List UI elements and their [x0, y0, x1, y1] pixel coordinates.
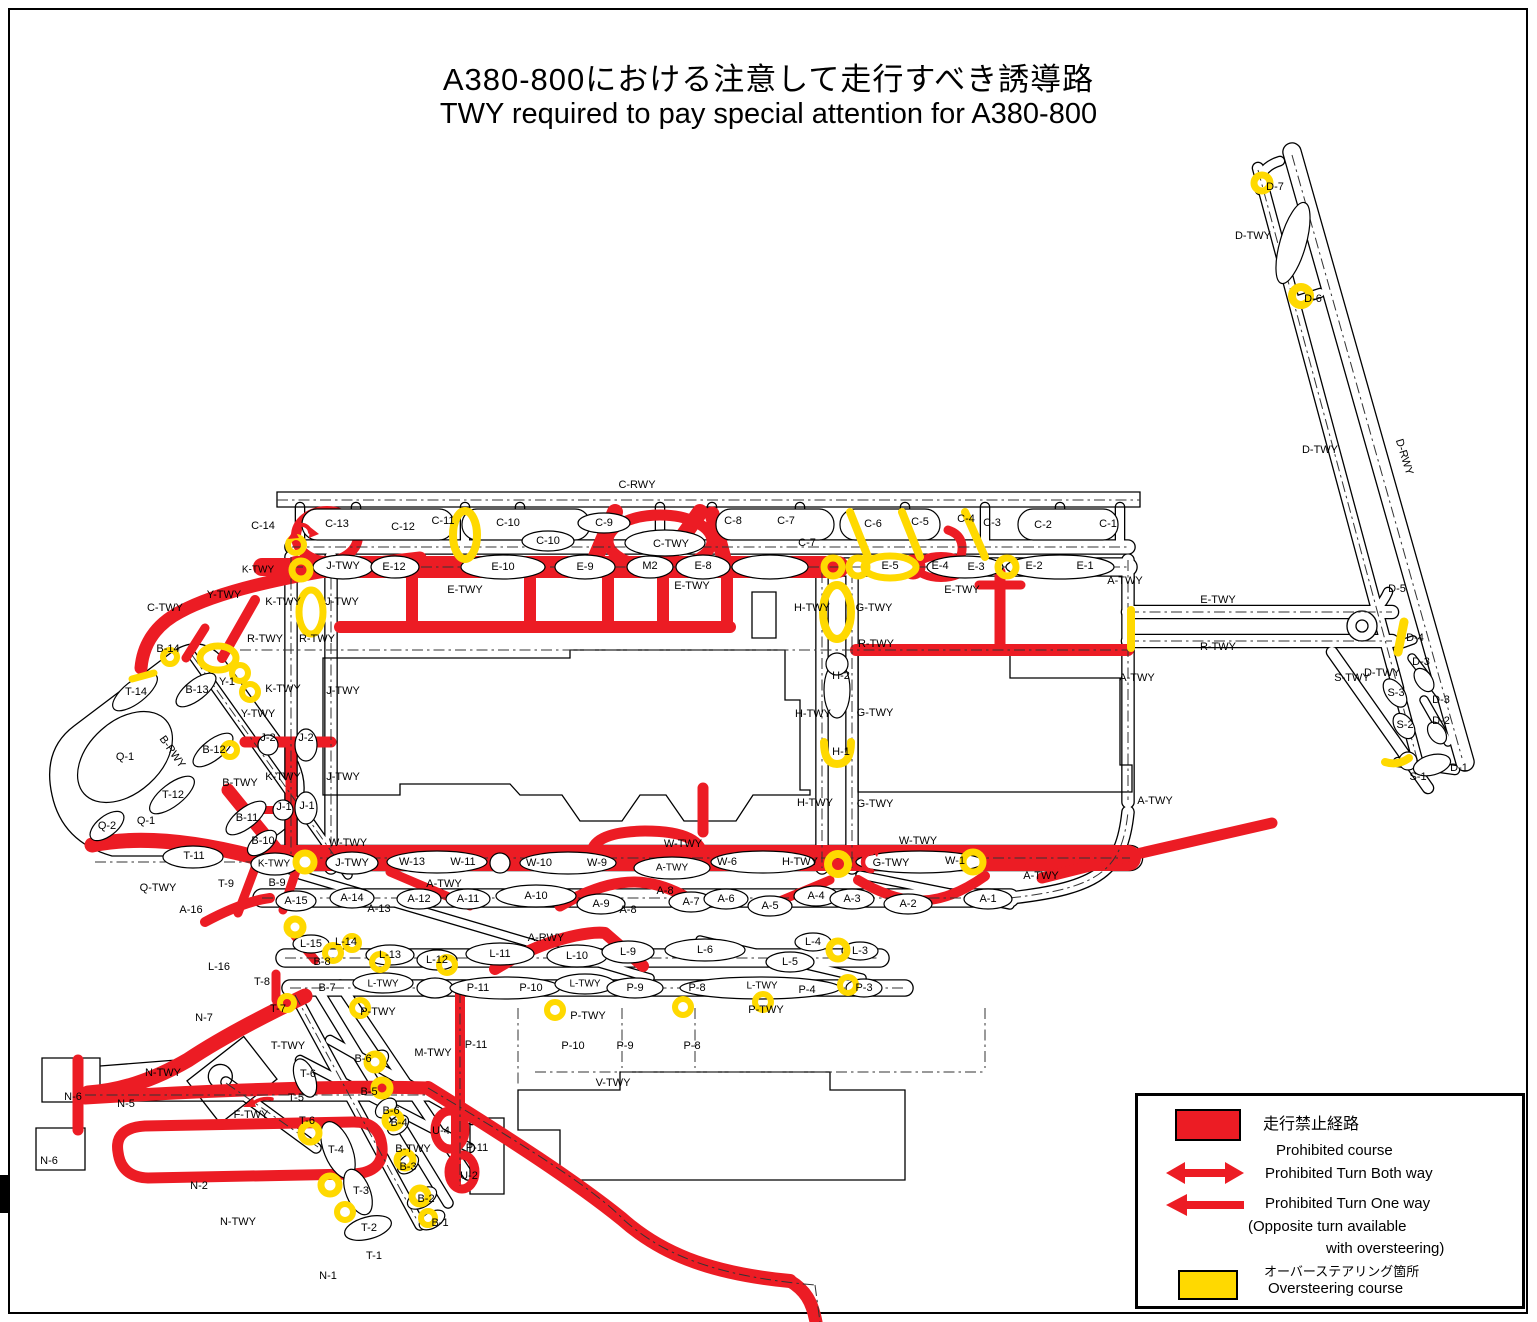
map-label: H-TWY	[797, 797, 834, 809]
legend-oversteer-jp: オーバーステアリング箇所	[1264, 1261, 1419, 1280]
map-label: C-9	[595, 517, 613, 529]
map-label: D-3	[1432, 694, 1450, 706]
map-label: T-6	[300, 1068, 316, 1080]
map-label: L-TWY	[367, 979, 398, 990]
legend-turn-one-note1: (Opposite turn available	[1248, 1218, 1406, 1235]
oversteer-segment	[547, 1002, 563, 1018]
structure-outline	[858, 648, 1132, 792]
map-label: L-TWY	[746, 981, 777, 992]
map-label: B-5	[360, 1086, 377, 1098]
map-label: E-3	[967, 561, 984, 573]
map-label: S-2	[1396, 719, 1413, 731]
map-label: Y-TWY	[241, 708, 276, 720]
map-label: Y-TWY	[207, 589, 242, 601]
map-label: A-TWY	[1107, 575, 1143, 587]
map-label: C-2	[1034, 519, 1052, 531]
map-label: E-TWY	[447, 584, 483, 596]
map-label: C-13	[325, 518, 349, 530]
map-label: P-TWY	[360, 1006, 396, 1018]
map-label: R-TWY	[299, 633, 336, 645]
map-label: P-3	[855, 982, 872, 994]
map-label: A-11	[457, 893, 479, 905]
map-label: B-7	[318, 982, 335, 994]
map-label: W-TWY	[899, 835, 938, 847]
map-label: N-5	[117, 1098, 135, 1110]
map-label: C-11	[431, 515, 454, 527]
map-label: L-12	[426, 954, 448, 966]
map-label: C-14	[251, 520, 275, 532]
map-label: A-TWY	[1023, 870, 1059, 882]
map-label: P-TWY	[570, 1010, 606, 1022]
map-label: F-TWY	[234, 1109, 269, 1121]
map-label: B-12	[202, 744, 225, 756]
map-label: D-TWY	[1364, 667, 1401, 679]
map-label: H-1	[832, 746, 850, 758]
map-label: N-1	[319, 1270, 337, 1282]
taxiway-island	[732, 555, 808, 579]
map-label: E-8	[694, 560, 711, 572]
map-label: A-2	[899, 898, 916, 910]
map-label: B-11	[236, 812, 258, 824]
map-label: L-3	[852, 945, 868, 957]
oversteer-segment	[337, 1204, 353, 1220]
map-label: P-11	[465, 1039, 487, 1051]
map-label: V-TWY	[596, 1077, 631, 1089]
map-label: A-15	[284, 895, 307, 907]
map-label: L-14	[335, 936, 357, 948]
map-label: H-2	[832, 670, 850, 682]
map-label: T-8	[254, 976, 270, 988]
oversteer-segment	[1398, 622, 1404, 652]
map-label: J-2	[298, 732, 313, 744]
map-label: L-15	[300, 938, 322, 950]
map-label: S-1	[1409, 771, 1426, 783]
map-label: K-TWY	[265, 683, 301, 695]
map-label: D-7	[1266, 181, 1284, 193]
map-label: N-2	[190, 1180, 208, 1192]
legend-prohibited-jp: 走行禁止経路	[1263, 1110, 1359, 1134]
map-label: K-TWY	[258, 859, 291, 870]
legend: 走行禁止経路 Prohibited course Prohibited Turn…	[1135, 1093, 1525, 1309]
map-label: C-TWY	[653, 538, 690, 550]
map-label: C-RWY	[618, 479, 656, 491]
map-label: W-9	[587, 857, 607, 869]
map-label: C-7	[777, 515, 795, 527]
legend-turn-one-note2: with oversteering)	[1326, 1240, 1444, 1257]
map-label: T-TWY	[271, 1040, 306, 1052]
map-label: K-TWY	[242, 565, 275, 576]
map-label: W-11	[450, 856, 475, 868]
map-label: L-4	[805, 936, 821, 948]
map-label: C-10	[536, 535, 560, 547]
structure-outline	[1347, 611, 1377, 641]
map-label: L-16	[208, 961, 230, 973]
map-label: K-TWY	[265, 771, 301, 783]
map-label: B-14	[156, 643, 179, 655]
map-label: L-5	[782, 956, 798, 968]
map-label: Q-TWY	[140, 882, 177, 894]
map-label: P-11	[467, 982, 489, 994]
map-label: E-10	[491, 561, 514, 573]
map-label: P-10	[519, 982, 542, 994]
map-label: C-1	[1099, 518, 1117, 530]
map-label: P-10	[561, 1040, 584, 1052]
map-label: B-3	[399, 1161, 416, 1173]
map-label: T-11	[183, 850, 204, 862]
map-label: E-1	[1076, 560, 1093, 572]
map-label: W-1	[945, 855, 965, 867]
map-label: B-8	[313, 956, 330, 968]
map-label: C-7	[798, 537, 816, 549]
map-label: D-5	[1388, 583, 1406, 595]
map-label: W-TWY	[664, 838, 703, 850]
map-label: P-8	[683, 1040, 700, 1052]
map-label: C-10	[496, 517, 520, 529]
structure-outline	[518, 1072, 905, 1180]
map-label: L-11	[489, 948, 510, 960]
map-label: A-TWY	[426, 878, 462, 890]
taxiway-island	[1006, 555, 1114, 579]
map-label: A-RWY	[528, 932, 565, 944]
map-label: T-14	[125, 686, 147, 698]
map-label: B-TWY	[222, 777, 258, 789]
legend-oversteer-en: Oversteering course	[1268, 1280, 1403, 1297]
prohibited-turn-one-icon	[1164, 1192, 1246, 1218]
map-label: P-9	[626, 982, 643, 994]
map-label: S-3	[1387, 687, 1404, 699]
map-label: N-TWY	[145, 1067, 182, 1079]
map-label: B-6	[354, 1053, 371, 1065]
map-label: C-TWY	[147, 602, 184, 614]
map-label: R-TWY	[858, 638, 895, 650]
map-label: P-8	[688, 982, 705, 994]
map-label: D-2	[1432, 715, 1450, 727]
map-label: Y-1	[219, 676, 235, 688]
map-label: C-8	[724, 515, 742, 527]
map-label: A-3	[843, 893, 860, 905]
map-label: C-12	[391, 521, 415, 533]
map-label: A-8	[656, 885, 673, 897]
map-label: N-7	[195, 1012, 213, 1024]
map-label: A-9	[592, 898, 609, 910]
map-label: L-9	[620, 946, 636, 958]
map-label: A-5	[761, 900, 778, 912]
map-label: J-1	[299, 800, 314, 812]
map-label: T-7	[270, 1003, 286, 1015]
map-label: U-2	[460, 1170, 478, 1182]
map-label: A-7	[682, 896, 699, 908]
structure-outline	[323, 650, 810, 821]
map-label: B-13	[185, 684, 208, 696]
map-label: A-6	[717, 893, 734, 905]
map-label: N-6	[64, 1091, 82, 1103]
map-label: G-TWY	[857, 707, 894, 719]
map-label: E-9	[576, 561, 593, 573]
map-label: G-TWY	[857, 798, 894, 810]
map-label: B-10	[251, 835, 274, 847]
map-label: J-TWY	[325, 596, 359, 608]
oversteer-segment	[675, 999, 691, 1015]
map-label: B-TWY	[395, 1143, 431, 1155]
legend-prohibited-en: Prohibited course	[1276, 1142, 1393, 1159]
map-label: W-6	[717, 856, 737, 868]
map-label: E-TWY	[944, 584, 980, 596]
map-label: L-10	[566, 950, 588, 962]
map-label: G-TWY	[856, 602, 893, 614]
map-label: E-TWY	[1200, 594, 1236, 606]
map-label: D-4	[1406, 632, 1424, 644]
map-label: B-6	[382, 1105, 399, 1117]
page-edge-mark	[0, 1175, 8, 1213]
map-label: E-5	[881, 560, 898, 572]
prohibited-segment	[1128, 823, 1272, 856]
map-label: J-TWY	[326, 771, 360, 783]
map-label: D-6	[1304, 293, 1322, 305]
map-label: M2	[642, 560, 657, 572]
map-label: T-3	[353, 1185, 369, 1197]
map-label: R-TWY	[247, 633, 284, 645]
prohibited-segment	[790, 1281, 816, 1322]
map-label: W-TWY	[329, 837, 368, 849]
map-label: A-10	[524, 890, 547, 902]
map-label: E-2	[1025, 560, 1042, 572]
taxiway-island	[417, 978, 453, 998]
map-label: L-13	[379, 949, 401, 961]
map-label: A-4	[807, 890, 824, 902]
map-label: T-2	[361, 1222, 377, 1234]
map-label: T-9	[218, 878, 234, 890]
oversteer-segment	[299, 590, 323, 634]
map-label: R-TWY	[1200, 641, 1237, 653]
prohibited-segment	[428, 1088, 790, 1281]
map-label: J-TWY	[326, 685, 360, 697]
map-label: E-TWY	[674, 580, 710, 592]
map-label: A-13	[367, 903, 390, 915]
map-label: A-TWY	[1119, 672, 1155, 684]
map-label: J-TWY	[326, 560, 360, 572]
map-label: G-TWY	[873, 857, 910, 869]
map-label: B-2	[417, 1193, 434, 1205]
oversteer-segment	[321, 1176, 339, 1194]
map-label: J-1	[276, 801, 291, 813]
map-label: D-RWY	[1393, 437, 1416, 477]
taxiway-island	[490, 853, 510, 873]
oversteer-segment	[242, 684, 258, 700]
map-label: J-2	[260, 732, 275, 744]
map-label: M-TWY	[414, 1047, 452, 1059]
map-label: E-4	[931, 560, 948, 572]
map-label: T-6	[299, 1115, 315, 1127]
map-label: A-TWY	[656, 863, 689, 874]
map-label: E-12	[382, 561, 405, 573]
map-label: C-3	[983, 517, 1001, 529]
map-label: W-13	[399, 856, 425, 868]
oversteer-segment	[287, 919, 303, 935]
map-label: A-16	[179, 904, 202, 916]
page: A380-800における注意して走行すべき誘導路 TWY required to…	[0, 0, 1537, 1322]
prohibited-course-swatch	[1175, 1109, 1241, 1141]
structure-outline	[752, 592, 776, 638]
map-label: D-1	[1450, 762, 1468, 774]
map-label: H-TWY	[782, 856, 819, 868]
map-label: B-4	[390, 1117, 407, 1129]
map-label: B-9	[268, 877, 285, 889]
map-label: A-12	[407, 893, 430, 905]
map-label: T-12	[162, 789, 184, 801]
map-label: A-1	[979, 893, 996, 905]
map-label: T-1	[366, 1250, 382, 1262]
map-label: D-3	[1412, 656, 1430, 668]
map-label: Q-1	[116, 751, 134, 763]
map-label: A-14	[340, 892, 363, 904]
map-label: P-11	[466, 1142, 488, 1154]
map-label: H-TWY	[795, 708, 832, 720]
map-label: L-TWY	[569, 979, 600, 990]
map-label: N-6	[40, 1155, 58, 1167]
map-label: K-TWY	[265, 596, 301, 608]
map-label: A-TWY	[1137, 795, 1173, 807]
legend-turn-one: Prohibited Turn One way	[1265, 1195, 1430, 1212]
map-label: P-9	[616, 1040, 633, 1052]
map-label: T-5	[288, 1092, 304, 1104]
map-label: P-TWY	[748, 1004, 784, 1016]
map-label: T-4	[328, 1144, 344, 1156]
prohibited-turn-both-icon	[1164, 1160, 1246, 1186]
map-label: W-10	[526, 857, 552, 869]
oversteer-course-swatch	[1178, 1270, 1238, 1300]
map-label: D-TWY	[1302, 444, 1339, 456]
map-label: C-5	[911, 516, 929, 528]
map-label: U-4	[432, 1125, 450, 1137]
map-label: C-4	[957, 513, 975, 525]
map-label: J-TWY	[335, 857, 369, 869]
map-label: A-8	[619, 904, 636, 916]
map-label: Q-1	[137, 815, 155, 827]
map-label: Q-2	[98, 820, 116, 832]
map-label: N-TWY	[220, 1216, 257, 1228]
map-label: P-4	[798, 984, 815, 996]
map-label: B-1	[431, 1217, 448, 1229]
map-label: C-6	[864, 518, 882, 530]
legend-turn-both: Prohibited Turn Both way	[1265, 1165, 1433, 1182]
map-label: L-6	[697, 944, 713, 956]
map-label: D-TWY	[1235, 230, 1272, 242]
map-label: H-TWY	[794, 602, 831, 614]
